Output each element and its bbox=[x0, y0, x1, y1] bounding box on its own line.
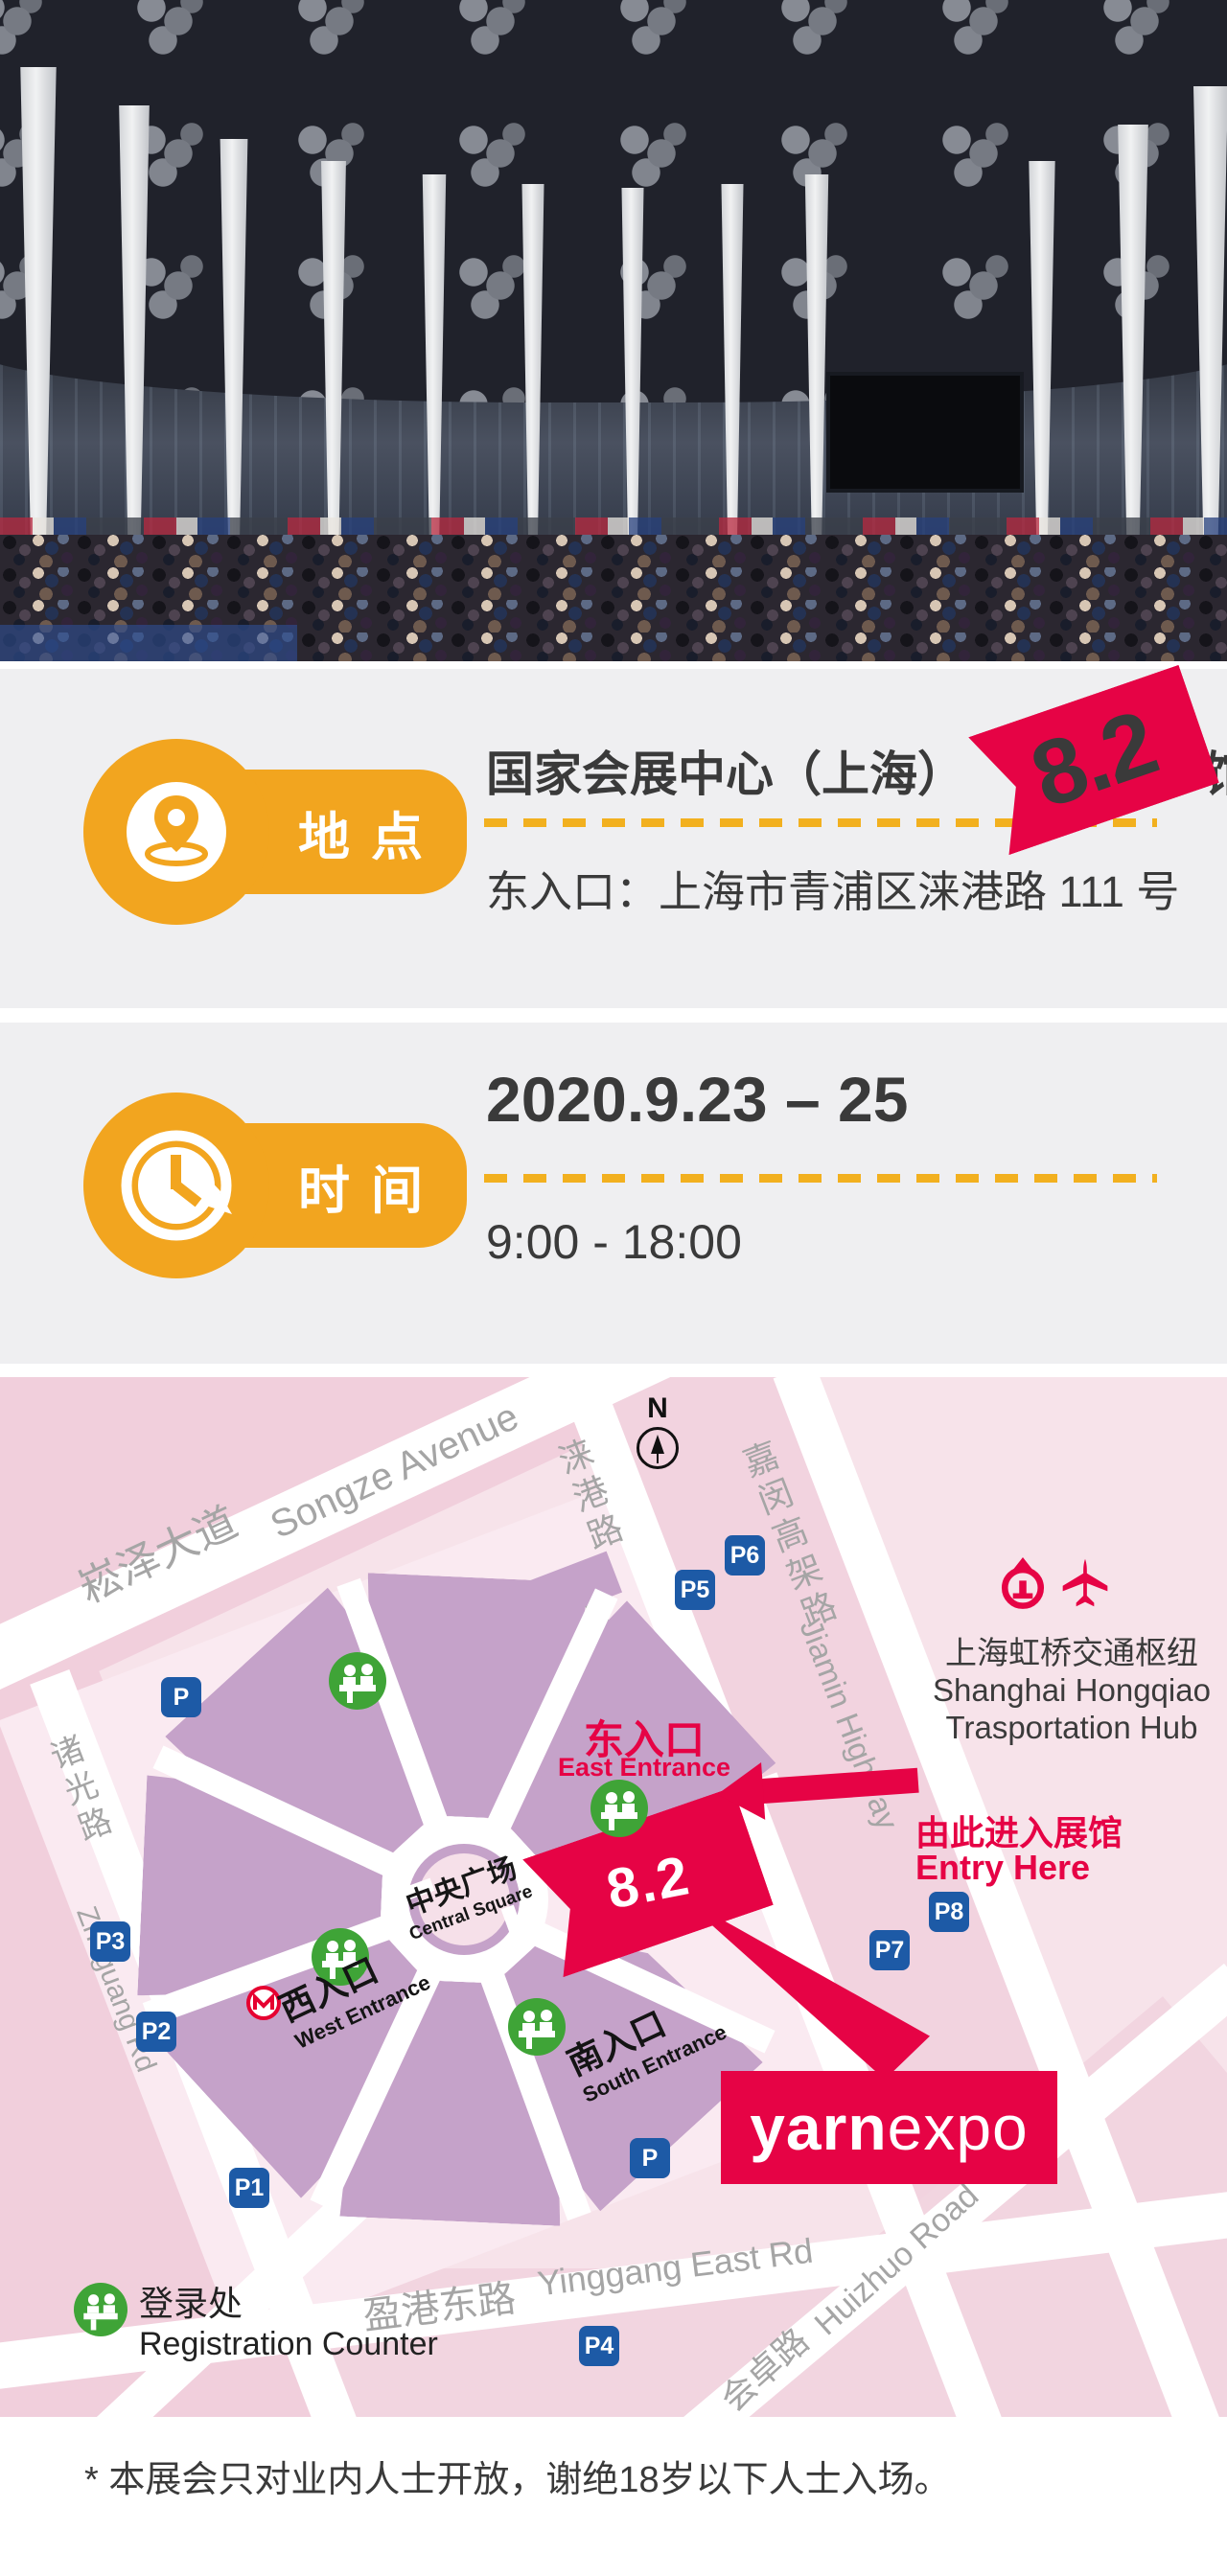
parking-badge-p8: P8 bbox=[929, 1892, 969, 1932]
registration-icon bbox=[590, 1780, 648, 1837]
parking-badge-p: P bbox=[161, 1677, 201, 1717]
parking-badge-p1: P1 bbox=[229, 2168, 269, 2208]
parking-badge-p7: P7 bbox=[869, 1930, 910, 1970]
registration-icon bbox=[508, 1998, 566, 2056]
airplane-icon bbox=[1058, 1555, 1112, 1611]
venue-address: 东入口：上海市青浦区涞港路 111 号 bbox=[486, 857, 1179, 919]
event-hours: 9:00 - 18:00 bbox=[486, 1214, 742, 1270]
hub-en-1: Shanghai Hongqiao bbox=[918, 1671, 1225, 1709]
parking-badge-p6: P6 bbox=[725, 1535, 765, 1575]
venue-photo bbox=[0, 0, 1227, 661]
arrow-head bbox=[715, 1762, 765, 1823]
clock-icon bbox=[109, 1118, 243, 1253]
venue-map: 崧泽大道 Songze Avenue 涞港路 Laigang Rd 嘉闵高架路 … bbox=[0, 1377, 1227, 2417]
north-label: N bbox=[631, 1392, 684, 1425]
registration-icon-legend bbox=[74, 2283, 127, 2336]
parking-badge-p4: P4 bbox=[579, 2326, 619, 2366]
admission-note: * 本展会只对业内人士开放，谢绝18岁以下人士入场。 bbox=[84, 2449, 951, 2502]
yarnexpo-logo: yarnexpo bbox=[721, 2071, 1057, 2184]
time-tab-label: 时间 bbox=[298, 1148, 444, 1224]
parking-badge-p2: P2 bbox=[136, 2012, 176, 2052]
entry-here-en: Entry Here bbox=[915, 1848, 1090, 1888]
north-compass: N bbox=[631, 1392, 684, 1469]
registration-legend: 登录处 Registration Counter bbox=[139, 2276, 438, 2363]
location-tab-label: 地点 bbox=[298, 794, 444, 870]
venue-name: 国家会展中心（上海） bbox=[486, 736, 965, 805]
hall-8-2-label: 8.2 bbox=[601, 1843, 695, 1921]
railway-icon bbox=[995, 1557, 1051, 1615]
hub-zh: 上海虹桥交通枢纽 bbox=[918, 1634, 1225, 1671]
arrow-shaft bbox=[756, 1768, 918, 1805]
time-section: 时间 2020.9.23 – 25 9:00 - 18:00 bbox=[0, 1023, 1227, 1364]
registration-icon bbox=[329, 1652, 386, 1710]
compass-circle bbox=[637, 1427, 679, 1469]
photo-blue-carpet bbox=[0, 625, 297, 661]
parking-badge-p3: P3 bbox=[90, 1921, 130, 1962]
event-dates: 2020.9.23 – 25 bbox=[486, 1063, 908, 1136]
hub-en-2: Trasportation Hub bbox=[918, 1709, 1225, 1746]
compass-tail bbox=[657, 1453, 659, 1463]
hub-label: 上海虹桥交通枢纽 Shanghai Hongqiao Trasportation… bbox=[918, 1634, 1225, 1746]
venue-title: 国家会展中心（上海）8.2馆 bbox=[486, 698, 1227, 822]
location-section: 地点 国家会展中心（上海）8.2馆 东入口：上海市青浦区涞港路 111 号 bbox=[0, 669, 1227, 1008]
map-pin-icon bbox=[109, 765, 243, 899]
compass-needle-icon bbox=[651, 1435, 664, 1454]
parking-badge-p5: P5 bbox=[675, 1570, 715, 1610]
dashed-divider bbox=[484, 1174, 1157, 1183]
location-badge bbox=[83, 739, 269, 925]
photo-led-screen bbox=[826, 372, 1024, 493]
exhibition-poster: 地点 国家会展中心（上海）8.2馆 东入口：上海市青浦区涞港路 111 号 时间 bbox=[0, 0, 1227, 2576]
legend-zh: 登录处 bbox=[139, 2276, 438, 2326]
time-badge bbox=[83, 1092, 269, 1278]
parking-badge-p-south: P bbox=[630, 2138, 670, 2178]
yarnexpo-regular: expo bbox=[888, 2091, 1029, 2164]
yarnexpo-bold: yarn bbox=[750, 2091, 887, 2164]
legend-en: Registration Counter bbox=[139, 2326, 438, 2363]
